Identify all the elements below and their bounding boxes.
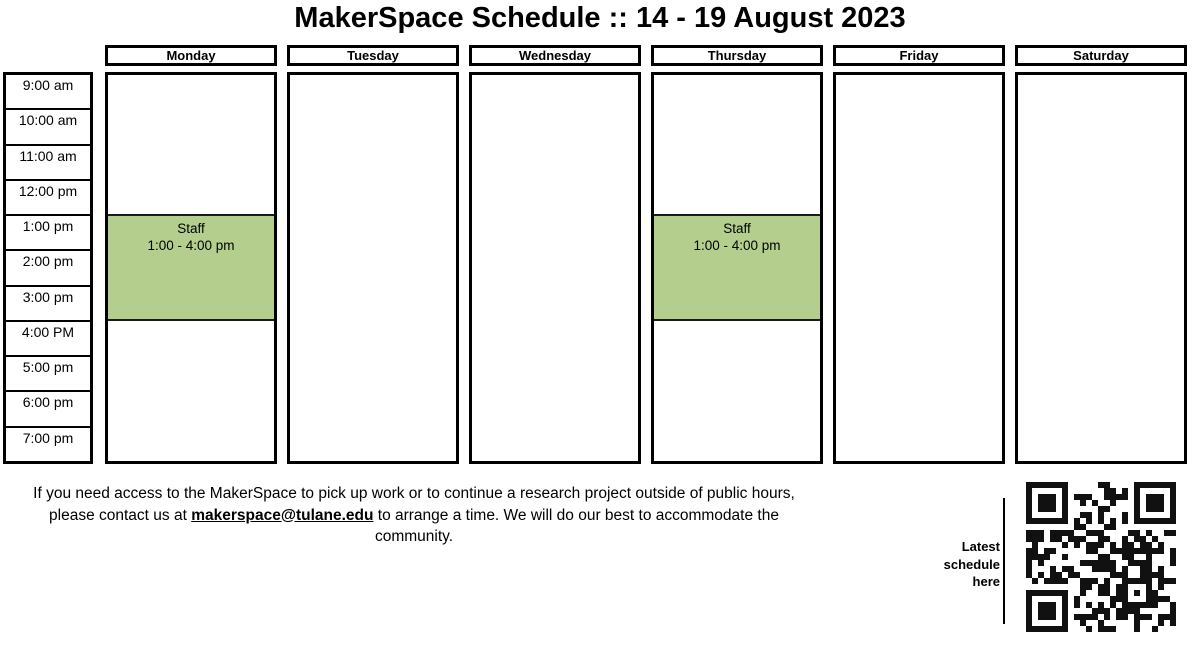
- event-title: Staff: [654, 220, 820, 237]
- page-title: MakerSpace Schedule :: 14 - 19 August 20…: [0, 0, 1200, 36]
- day-header-thursday: Thursday: [651, 45, 823, 66]
- time-label: 10:00 am: [6, 110, 90, 145]
- day-column-saturday: [1015, 72, 1187, 464]
- event-title: Staff: [108, 220, 274, 237]
- time-label: 11:00 am: [6, 146, 90, 181]
- vertical-divider: [1003, 498, 1005, 624]
- time-label: 9:00 am: [6, 75, 90, 110]
- day-column-monday: Staff 1:00 - 4:00 pm: [105, 72, 277, 464]
- time-label: 2:00 pm: [6, 251, 90, 286]
- day-column-friday: [833, 72, 1005, 464]
- day-header-tuesday: Tuesday: [287, 45, 459, 66]
- event-staff-thursday: Staff 1:00 - 4:00 pm: [654, 214, 820, 321]
- day-header-monday: Monday: [105, 45, 277, 66]
- time-label: 5:00 pm: [6, 357, 90, 392]
- time-label: 1:00 pm: [6, 216, 90, 251]
- time-label: 12:00 pm: [6, 181, 90, 216]
- page: MakerSpace Schedule :: 14 - 19 August 20…: [0, 0, 1200, 661]
- event-staff-monday: Staff 1:00 - 4:00 pm: [108, 214, 274, 321]
- time-label: 4:00 PM: [6, 322, 90, 357]
- day-header-saturday: Saturday: [1015, 45, 1187, 66]
- footer-line3: community.: [6, 526, 822, 548]
- day-column-thursday: Staff 1:00 - 4:00 pm: [651, 72, 823, 464]
- time-column: 9:00 am 10:00 am 11:00 am 12:00 pm 1:00 …: [3, 72, 93, 464]
- footer-line2-after: to arrange a time. We will do our best t…: [373, 507, 779, 524]
- day-header-friday: Friday: [833, 45, 1005, 66]
- email-link[interactable]: makerspace@tulane.edu: [191, 507, 373, 524]
- event-time: 1:00 - 4:00 pm: [108, 237, 274, 254]
- event-time: 1:00 - 4:00 pm: [654, 237, 820, 254]
- time-label: 6:00 pm: [6, 392, 90, 427]
- latest-schedule-label: Latest schedule here: [938, 538, 1000, 591]
- footer-line2-before: please contact us at: [49, 507, 191, 524]
- time-label: 3:00 pm: [6, 287, 90, 322]
- footer-note: If you need access to the MakerSpace to …: [6, 483, 822, 548]
- day-header-wednesday: Wednesday: [469, 45, 641, 66]
- footer-line2: please contact us at makerspace@tulane.e…: [6, 505, 822, 527]
- time-label: 7:00 pm: [6, 428, 90, 461]
- day-column-tuesday: [287, 72, 459, 464]
- footer-line1: If you need access to the MakerSpace to …: [6, 483, 822, 505]
- day-column-wednesday: [469, 72, 641, 464]
- qr-code: [1026, 482, 1176, 632]
